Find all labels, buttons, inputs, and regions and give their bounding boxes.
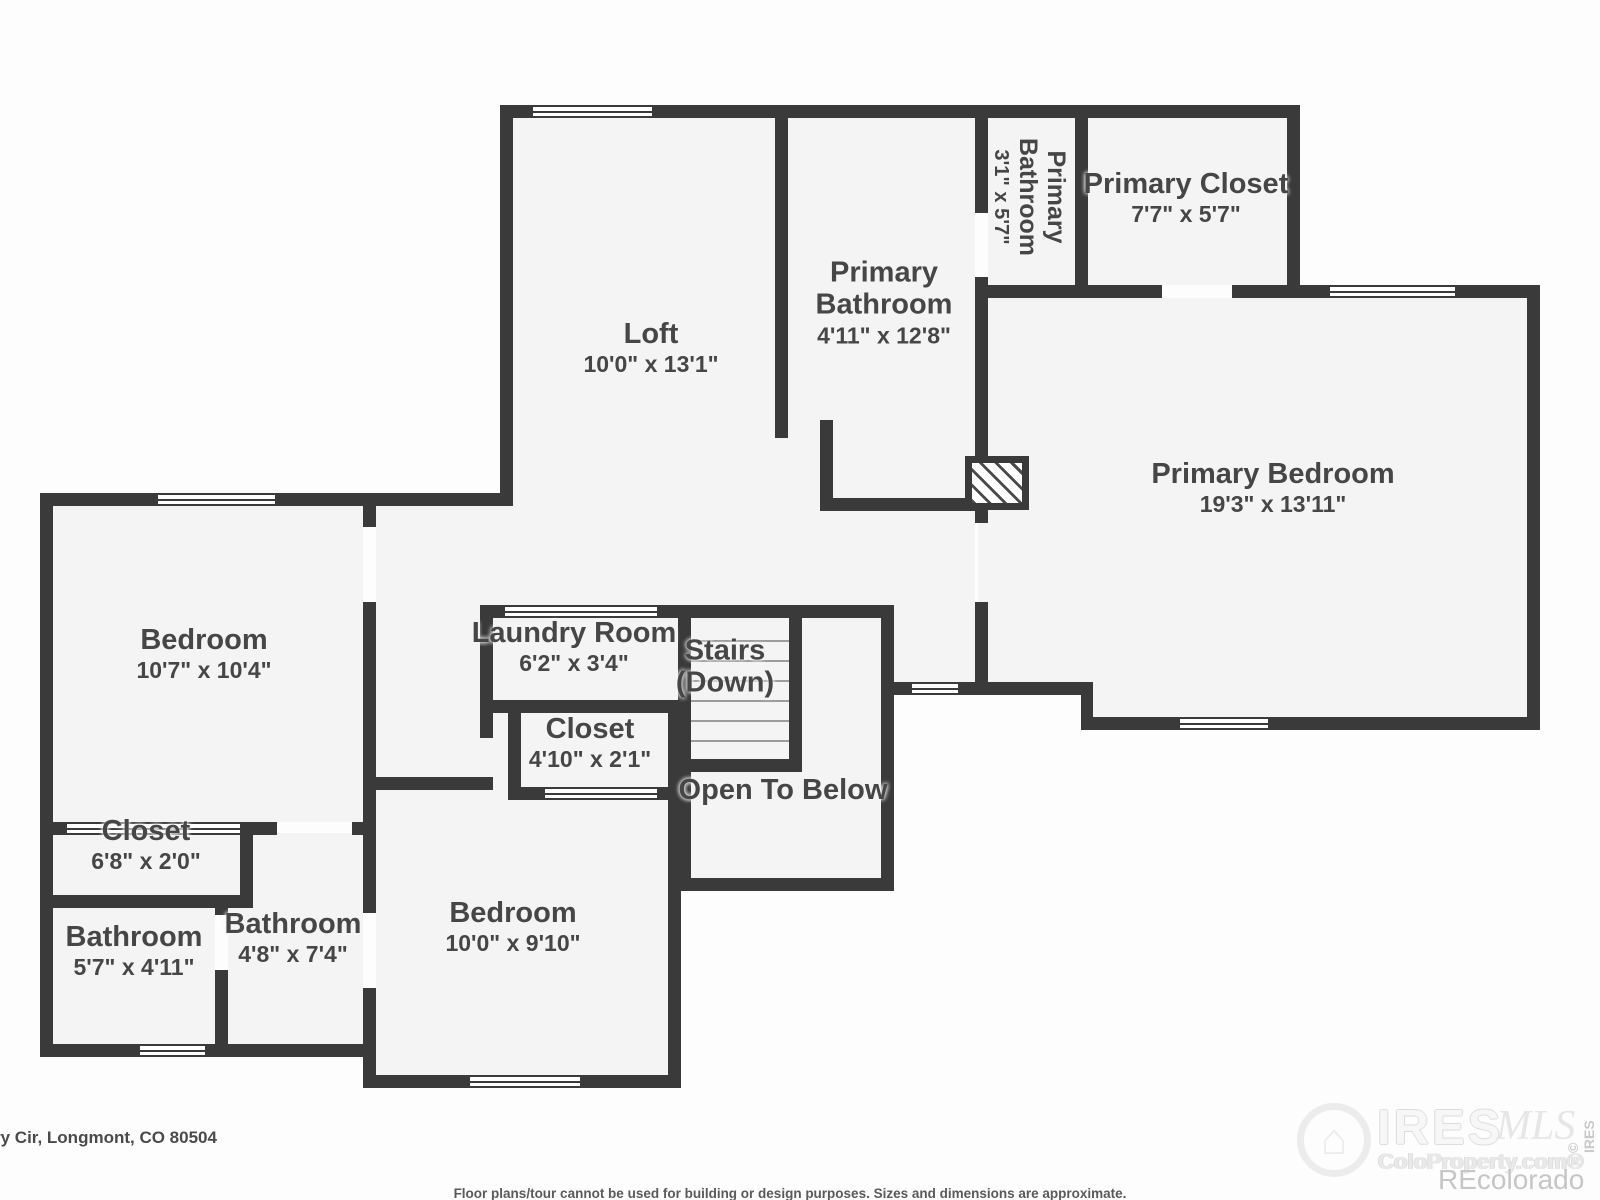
- wall: [500, 105, 513, 506]
- room-fill: [1093, 640, 1527, 717]
- room-name: Loft: [583, 318, 718, 350]
- room-name: Primary Bedroom: [1151, 458, 1394, 490]
- address-text: ry Cir, Longmont, CO 80504: [0, 1128, 217, 1148]
- wall: [1232, 285, 1287, 298]
- wall: [820, 498, 978, 511]
- window: [470, 1075, 580, 1088]
- ires-logo-circle: ⌂: [1297, 1103, 1371, 1177]
- wall: [975, 285, 1162, 298]
- room-label-bedroom-left: Bedroom 10'7" x 10'4": [136, 624, 271, 684]
- room-label-primary-closet: Primary Closet 7'7" x 5'7": [1084, 168, 1289, 228]
- wall: [40, 895, 240, 908]
- room-label-closet-center: Closet 4'10" x 2'1": [529, 713, 651, 773]
- room-name: Closet: [529, 713, 651, 745]
- room-name: Closet: [91, 815, 201, 847]
- room-label-closet-left: Closet 6'8" x 2'0": [91, 815, 201, 875]
- room-dims: 6'2" x 3'4": [472, 651, 677, 677]
- wall: [363, 777, 493, 790]
- room-label-primary-bathroom-small: Primary Bathroom 3'1" x 5'7": [990, 110, 1070, 285]
- house-icon: ⌂: [1321, 1118, 1348, 1162]
- room-name: Primary Closet: [1084, 168, 1289, 200]
- wall: [40, 493, 513, 506]
- room-fill: [802, 618, 881, 878]
- room-dims: 10'0" x 9'10": [445, 931, 580, 957]
- window: [545, 787, 657, 800]
- wall: [678, 605, 894, 618]
- room-dims: 4'11" x 12'8": [794, 324, 974, 350]
- room-label-laundry-room: Laundry Room 6'2" x 3'4": [472, 617, 677, 677]
- wall: [40, 822, 67, 835]
- room-name: Laundry Room: [472, 617, 677, 649]
- window: [140, 1044, 205, 1057]
- wall: [881, 605, 894, 891]
- recolorado-text: REcolorado: [1438, 1164, 1584, 1196]
- stair-tread: [691, 720, 789, 722]
- wall: [215, 970, 228, 1057]
- room-label-stairs: Stairs (Down): [676, 635, 774, 700]
- wall: [678, 759, 802, 772]
- wall: [975, 602, 988, 682]
- room-name: Bedroom: [445, 897, 580, 929]
- wall: [508, 787, 545, 800]
- room-dims: 3'1" x 5'7": [990, 110, 1012, 285]
- wall: [775, 118, 788, 438]
- wall: [363, 988, 376, 1088]
- room-name: Bedroom: [136, 624, 271, 656]
- wall: [40, 1044, 376, 1057]
- room-name: Stairs: [676, 635, 774, 667]
- room-label-bathroom-left: Bathroom 5'7" x 4'11": [66, 921, 203, 981]
- room-name: Bathroom: [66, 921, 203, 953]
- wall: [975, 118, 988, 213]
- wall: [240, 822, 253, 908]
- wall: [1287, 105, 1300, 298]
- wall: [678, 878, 894, 891]
- window: [1330, 285, 1455, 298]
- mls-logo-text: MLS: [1496, 1102, 1575, 1150]
- room-label-open-to-below: Open To Below: [679, 774, 888, 806]
- room-dims: 6'8" x 2'0": [91, 849, 201, 875]
- room-name: Primary Bathroom: [1014, 110, 1070, 285]
- floor-plan: Loft 10'0" x 13'1" Primary Bathroom 3'1"…: [0, 0, 1600, 1200]
- fireplace-hatch-fill: [972, 463, 1022, 503]
- wall: [789, 605, 802, 772]
- room-label-bedroom-bottom: Bedroom 10'0" x 9'10": [445, 897, 580, 957]
- room-name: Primary Bathroom: [794, 257, 974, 322]
- room-dims: 10'0" x 13'1": [583, 352, 718, 378]
- room-dims: 10'7" x 10'4": [136, 658, 271, 684]
- room-label-primary-bathroom: Primary Bathroom 4'11" x 12'8": [794, 257, 974, 350]
- room-dims: 5'7" x 4'11": [66, 955, 203, 981]
- stair-tread: [691, 700, 789, 702]
- wall: [40, 493, 53, 1057]
- room-label-loft: Loft 10'0" x 13'1": [583, 318, 718, 378]
- disclaimer-text: Floor plans/tour cannot be used for buil…: [290, 1186, 1290, 1200]
- room-dims: 7'7" x 5'7": [1084, 202, 1289, 228]
- room-label-primary-bedroom: Primary Bedroom 19'3" x 13'11": [1151, 458, 1394, 518]
- room-subname: (Down): [676, 667, 774, 699]
- room-fill: [833, 511, 975, 617]
- room-label-bathroom-right: Bathroom 4'8" x 7'4": [225, 908, 362, 968]
- ires-copyright-text: © IRES: [1565, 1115, 1597, 1153]
- wall: [363, 506, 376, 527]
- wall: [1527, 285, 1540, 730]
- window: [533, 105, 652, 118]
- wall: [363, 777, 376, 913]
- wall: [1081, 717, 1540, 730]
- window: [158, 493, 275, 506]
- room-name: Open To Below: [679, 774, 888, 806]
- wall: [975, 510, 988, 523]
- room-name: Bathroom: [225, 908, 362, 940]
- stair-tread: [691, 740, 789, 742]
- room-dims: 4'8" x 7'4": [225, 942, 362, 968]
- fireplace-hatch: [965, 456, 1029, 510]
- ires-logo-text: IRES: [1377, 1100, 1503, 1156]
- window: [1180, 717, 1268, 730]
- wall: [508, 700, 521, 787]
- room-dims: 19'3" x 13'11": [1151, 492, 1394, 518]
- wall: [657, 787, 681, 800]
- window: [912, 682, 958, 695]
- room-dims: 4'10" x 2'1": [529, 747, 651, 773]
